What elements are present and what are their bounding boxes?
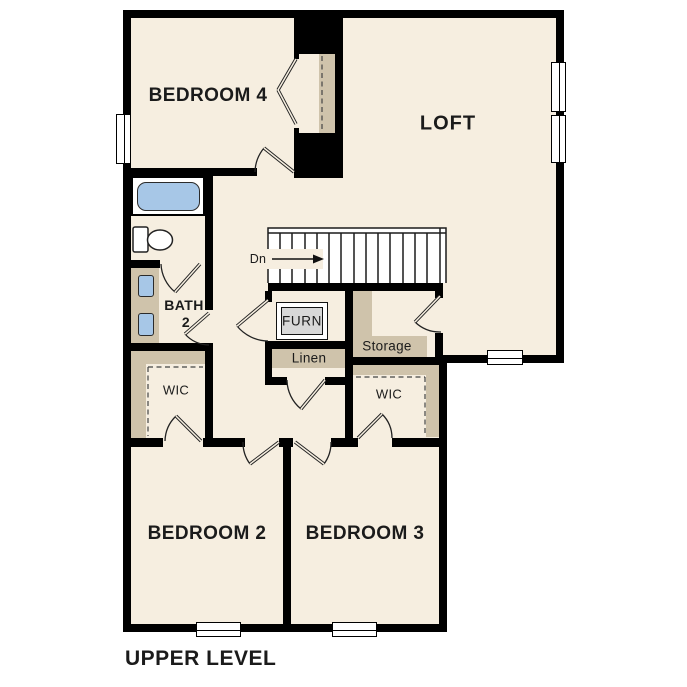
wall [123, 10, 564, 18]
room-label-storage: Storage [362, 339, 411, 354]
wall-jamb [294, 54, 299, 59]
room-label-bath-line1: BATH [164, 297, 203, 313]
wall [123, 10, 131, 632]
room-label-wic-right: WIC [376, 387, 402, 402]
wall-jamb [294, 128, 299, 133]
wall-hall-south [203, 438, 245, 447]
stairs-direction-label: Dn [250, 252, 267, 266]
vanity-sink [138, 313, 154, 336]
wall-storage-east [435, 291, 443, 298]
window-pane-line [488, 358, 522, 359]
wall-hall-south [123, 438, 163, 447]
wic-right-shelf-side [426, 374, 439, 437]
stairs-area [268, 228, 446, 283]
room-label-wic-left: WIC [163, 383, 189, 398]
wall-storage-east [435, 333, 443, 357]
wall-bedroom-divider [283, 438, 291, 632]
room-label-bath-line2: 2 [182, 314, 190, 330]
window-pane-line [559, 116, 560, 162]
window-bedroom4 [116, 114, 131, 164]
wall-bath-inner [123, 260, 160, 268]
room-label-bedroom3: BEDROOM 3 [306, 523, 425, 545]
bathtub [137, 182, 200, 211]
window-pane-line [333, 630, 376, 631]
window-pane-line [559, 63, 560, 111]
room-label-linen: Linen [292, 351, 327, 366]
vanity-sink [138, 275, 154, 297]
floor-plan: BEDROOM 4 LOFT BATH 2 WIC WIC Linen Stor… [0, 0, 687, 687]
room-label-bedroom4: BEDROOM 4 [149, 85, 268, 107]
wall-storage-west [345, 283, 353, 447]
bedroom4-closet-shelf [319, 54, 335, 133]
wall-hall-south [392, 438, 447, 447]
window-loft-upper [551, 62, 566, 112]
wall-linen-south [265, 377, 287, 385]
wall-bedroom4-south [123, 168, 257, 176]
wall [439, 355, 447, 632]
wall-hall-west [205, 345, 213, 447]
window-pane-line [197, 630, 240, 631]
window-bedroom2 [196, 622, 241, 637]
window-loft-south [487, 350, 523, 365]
wall-bath-east [205, 176, 213, 310]
storage-shelf-vertical [352, 291, 372, 339]
wall-furnace-west [265, 291, 272, 302]
window-bedroom3 [332, 622, 377, 637]
room-label-bedroom2: BEDROOM 2 [148, 523, 267, 545]
wall-furnace-linen [265, 341, 353, 349]
plan-title: UPPER LEVEL [125, 647, 276, 671]
wall-stairs-south [268, 283, 443, 291]
wall-storage-wic [345, 357, 445, 365]
furnace-label: FURN [282, 314, 322, 329]
wic-left-shelf-side [131, 351, 146, 440]
wall-bath-south [123, 343, 213, 351]
window-pane-line [124, 115, 125, 163]
wall-chase-bottom [294, 133, 343, 178]
window-loft-lower [551, 115, 566, 163]
room-label-loft: LOFT [420, 113, 476, 136]
